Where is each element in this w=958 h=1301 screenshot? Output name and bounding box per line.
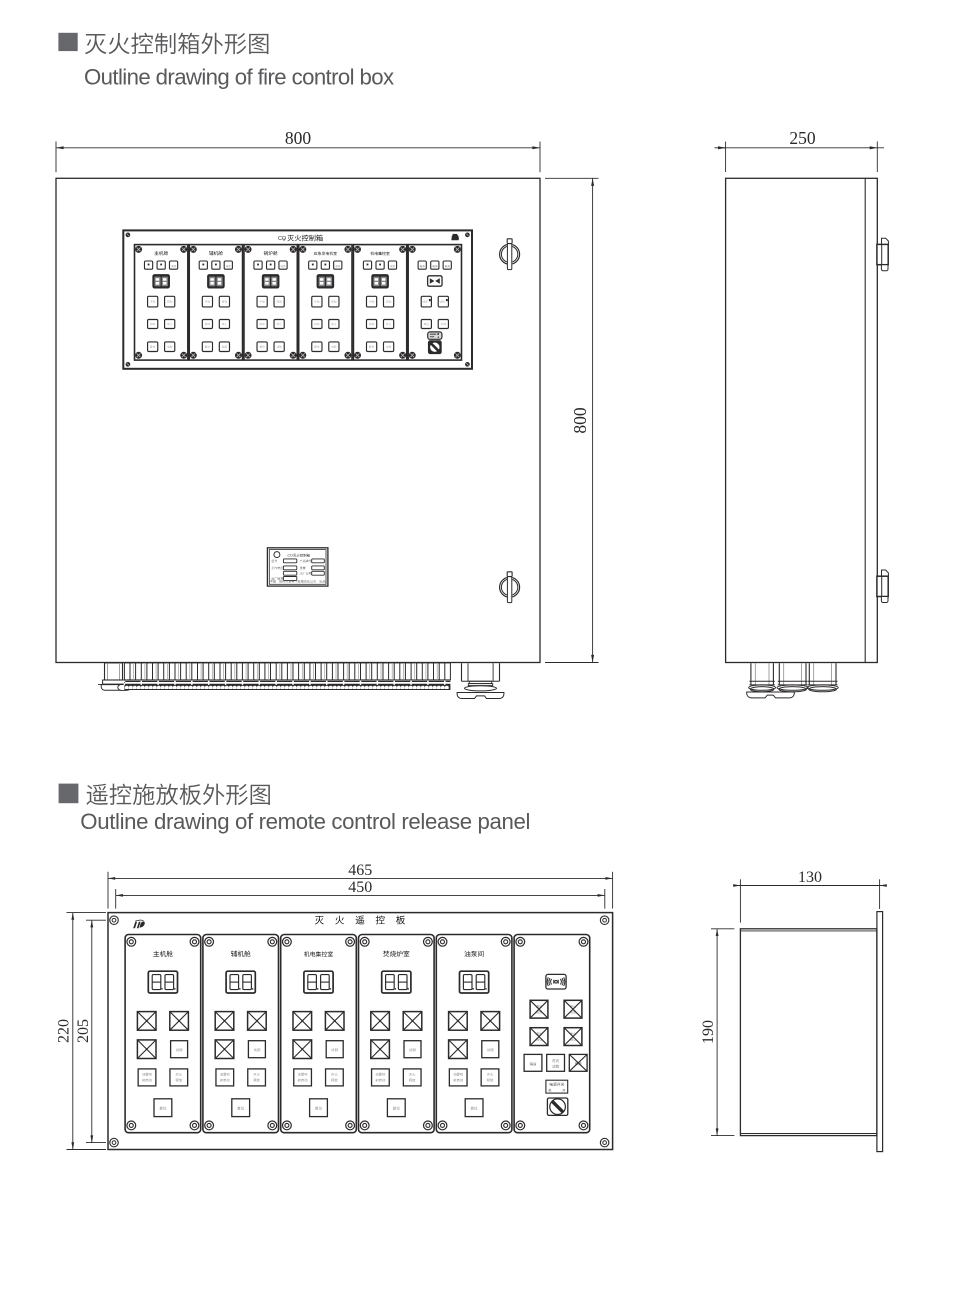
svg-text:2: 2 [283, 237, 285, 242]
svg-text:Outline drawing of fire contro: Outline drawing of fire control box [84, 65, 394, 90]
svg-text:250: 250 [789, 128, 816, 148]
svg-text:800: 800 [570, 407, 590, 434]
svg-text:220: 220 [56, 1019, 73, 1043]
svg-text:CO: CO [288, 554, 293, 558]
svg-text:Outline drawing of remote cont: Outline drawing of remote control releas… [80, 809, 530, 834]
svg-text:465: 465 [348, 862, 372, 879]
svg-text:800: 800 [285, 128, 312, 148]
svg-text:450: 450 [348, 879, 372, 896]
svg-text:130: 130 [798, 869, 822, 886]
svg-text:205: 205 [75, 1019, 92, 1043]
svg-text:190: 190 [700, 1020, 717, 1044]
